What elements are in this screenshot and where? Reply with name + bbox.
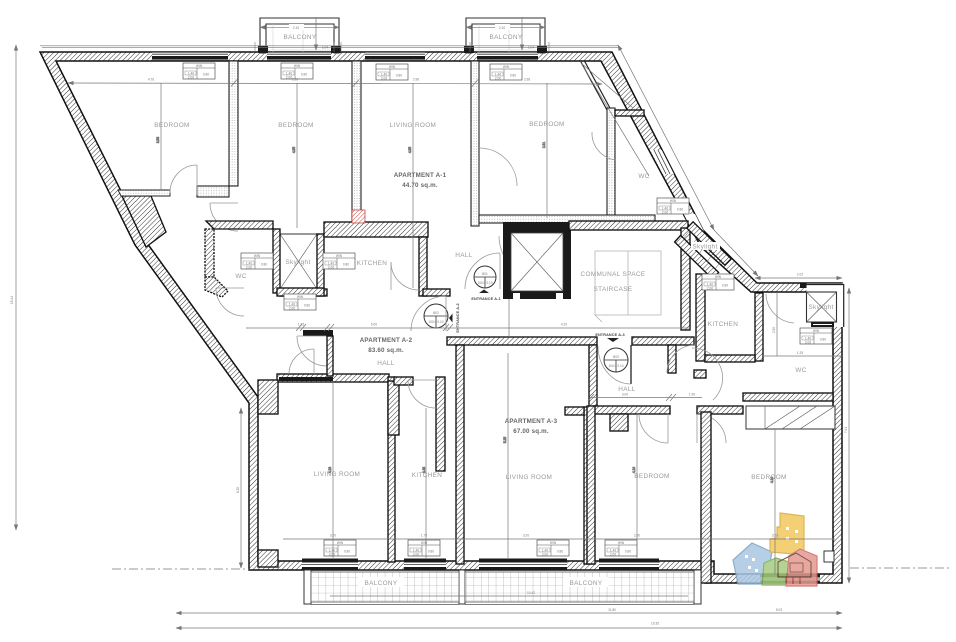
svg-text:BEDROOM: BEDROOM — [154, 122, 189, 129]
svg-text:BEDROOM: BEDROOM — [278, 122, 313, 129]
svg-text:BALCONY: BALCONY — [570, 580, 603, 587]
svg-text:19.35: 19.35 — [651, 622, 659, 626]
svg-text:5.25: 5.25 — [503, 437, 507, 443]
svg-text:COMMUNAL SPACE: COMMUNAL SPACE — [581, 271, 646, 278]
svg-text:WC: WC — [795, 367, 806, 374]
svg-text:4.76: 4.76 — [148, 78, 154, 82]
svg-text:3.00: 3.00 — [622, 393, 628, 397]
svg-text:1.25: 1.25 — [298, 323, 304, 327]
svg-text:67.00 sq.m.: 67.00 sq.m. — [513, 428, 549, 435]
svg-text:100.0 0.10: 100.0 0.10 — [428, 320, 443, 324]
svg-text:2.96: 2.96 — [292, 78, 298, 82]
svg-text:3.38: 3.38 — [524, 78, 530, 82]
svg-text:2.96: 2.96 — [413, 78, 419, 82]
svg-text:15.44: 15.44 — [10, 296, 14, 304]
svg-text:7.91: 7.91 — [844, 427, 848, 433]
svg-text:B01: B01 — [482, 272, 488, 276]
svg-text:B03: B03 — [613, 355, 619, 359]
svg-text:KITCHEN: KITCHEN — [357, 260, 388, 267]
svg-text:10.42: 10.42 — [527, 591, 535, 595]
svg-text:KITCHEN: KITCHEN — [412, 472, 443, 479]
svg-text:APARTMENT A-3: APARTMENT A-3 — [505, 418, 558, 425]
svg-text:BALCONY: BALCONY — [284, 34, 317, 41]
svg-text:1.70: 1.70 — [421, 534, 427, 538]
svg-text:2.10: 2.10 — [499, 26, 505, 30]
svg-text:3.53: 3.53 — [156, 137, 160, 143]
svg-text:LIVING ROOM: LIVING ROOM — [314, 471, 360, 478]
svg-text:Skylight: Skylight — [285, 259, 310, 266]
svg-text:4.10: 4.10 — [632, 467, 636, 473]
svg-text:4.20: 4.20 — [561, 323, 567, 327]
svg-text:100.0 0.10: 100.0 0.10 — [477, 281, 492, 285]
svg-text:BALCONY: BALCONY — [365, 580, 398, 587]
svg-text:HALL: HALL — [377, 360, 394, 367]
svg-text:6.20: 6.20 — [236, 487, 240, 493]
svg-text:4.55: 4.55 — [408, 147, 412, 153]
svg-text:44.70 sq.m.: 44.70 sq.m. — [402, 182, 438, 189]
svg-text:STAIRCASE: STAIRCASE — [594, 286, 633, 293]
svg-text:3.20: 3.20 — [523, 534, 529, 538]
svg-text:APARTMENT A-1: APARTMENT A-1 — [394, 172, 447, 179]
svg-text:4.10: 4.10 — [770, 477, 774, 483]
svg-text:KITCHEN: KITCHEN — [708, 321, 739, 328]
svg-text:LIVING ROOM: LIVING ROOM — [506, 474, 552, 481]
svg-text:2.02: 2.02 — [797, 273, 803, 277]
svg-text:Skylight: Skylight — [692, 244, 717, 251]
svg-text:ENTRANCE A-1: ENTRANCE A-1 — [471, 297, 500, 301]
svg-text:Skylight: Skylight — [808, 304, 833, 311]
svg-text:2.10: 2.10 — [293, 26, 299, 30]
svg-text:BALCONY: BALCONY — [490, 34, 523, 41]
svg-text:4.55: 4.55 — [292, 147, 296, 153]
svg-text:BEDROOM: BEDROOM — [634, 473, 669, 480]
svg-text:4.28: 4.28 — [328, 467, 332, 473]
svg-text:APARTMENT A-2: APARTMENT A-2 — [360, 337, 413, 344]
svg-text:83.60 sq.m.: 83.60 sq.m. — [368, 347, 404, 354]
svg-text:2.81: 2.81 — [542, 142, 546, 148]
svg-text:WC: WC — [235, 273, 246, 280]
svg-text:100.0 0.10: 100.0 0.10 — [608, 364, 623, 368]
svg-text:11.80: 11.80 — [608, 608, 616, 612]
svg-text:4.48: 4.48 — [422, 467, 426, 473]
svg-text:2.50: 2.50 — [772, 327, 776, 333]
svg-text:1.25: 1.25 — [797, 351, 803, 355]
svg-text:ENTRANCE A-3: ENTRANCE A-3 — [595, 333, 624, 337]
svg-text:BEDROOM: BEDROOM — [751, 474, 786, 481]
svg-text:5.00: 5.00 — [371, 323, 377, 327]
svg-text:HALL: HALL — [455, 252, 472, 259]
svg-text:B02: B02 — [433, 311, 439, 315]
svg-text:1.90: 1.90 — [689, 393, 695, 397]
svg-text:5.03: 5.03 — [776, 608, 782, 612]
